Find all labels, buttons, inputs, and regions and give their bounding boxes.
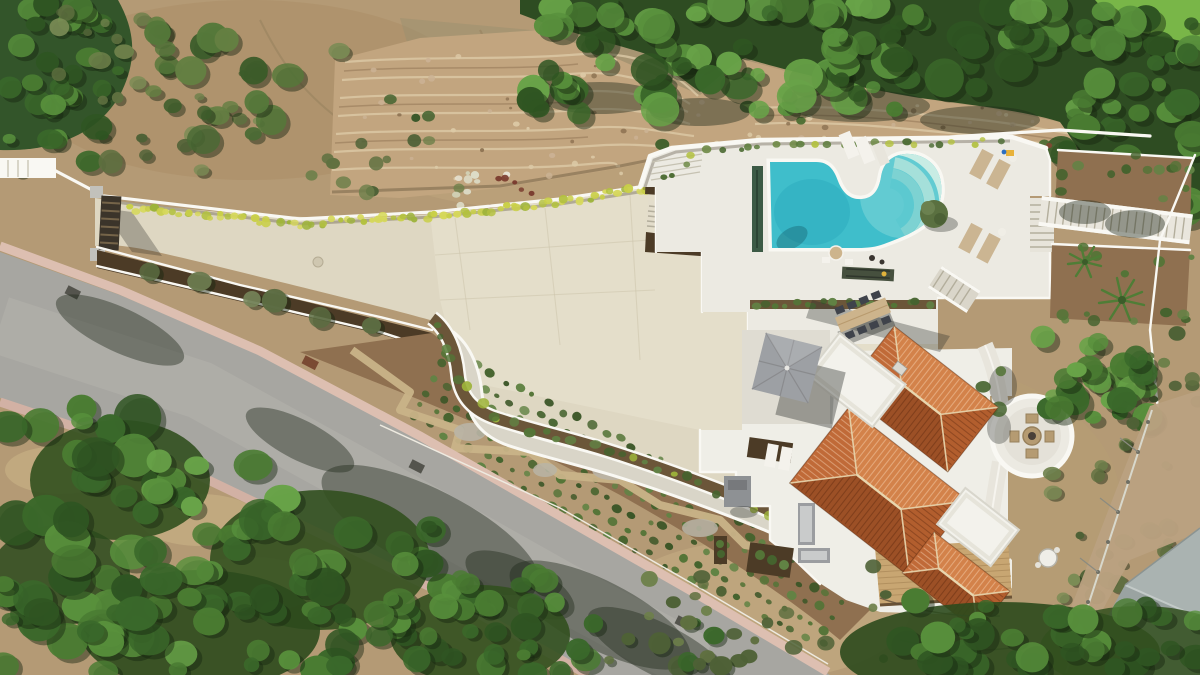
veg-blob [471,171,479,179]
veg-blob [641,571,658,587]
veg-blob [682,471,692,481]
veg-blob [466,171,470,175]
veg-blob [750,636,759,644]
veg-blob [289,548,317,576]
veg-blob [495,176,502,182]
veg-blob [1001,629,1024,647]
veg-blob [1076,19,1093,35]
veg-blob [250,584,279,613]
veg-blob [369,156,384,170]
veg-blob [378,100,385,105]
veg-blob [453,211,461,218]
veg-blob [268,511,301,541]
veg-blob [709,656,732,675]
veg-blob [528,165,533,169]
veg-blob [591,73,597,78]
veg-blob [629,454,637,462]
veg-blob [762,5,778,21]
veg-blob [929,143,935,147]
veg-blob [686,152,695,159]
veg-blob [328,216,335,223]
veg-blob [660,174,667,180]
veg-blob [834,72,849,86]
veg-blob [1088,333,1109,351]
veg-blob [948,139,955,145]
veg-blob [740,649,757,663]
veg-blob [509,417,519,426]
veg-blob [1154,165,1165,175]
veg-blob [187,125,220,154]
veg-blob [1121,164,1131,174]
veg-blob [519,187,524,191]
veg-blob [276,218,285,227]
veg-blob [410,157,414,160]
veg-blob [793,299,802,306]
veg-blob [194,93,204,100]
veg-blob [140,563,183,596]
veg-blob [110,485,137,508]
veg-blob [567,195,573,201]
veg-blob [1057,309,1069,320]
veg-blob [880,590,892,599]
veg-blob [891,303,898,308]
veg-blob [230,212,238,219]
veg-blob [164,98,182,113]
veg-blob [383,156,392,164]
veg-blob [1084,311,1090,316]
veg-blob [972,142,979,148]
veg-blob [426,58,431,63]
veg-blob [328,43,349,59]
veg-blob [546,172,553,179]
veg-blob [193,607,225,635]
veg-blob [181,496,202,516]
veg-blob [901,588,930,613]
veg-blob [886,102,903,117]
veg-blob [129,76,146,89]
veg-blob [1119,72,1150,96]
veg-blob [474,179,480,184]
veg-blob [322,153,334,163]
veg-blob [752,303,762,310]
veg-blob [279,650,301,669]
veg-blob [217,211,223,216]
veg-blob [524,428,536,438]
veg-blob [338,217,343,222]
veg-blob [272,63,304,87]
veg-blob [442,344,452,353]
veg-blob [701,606,712,616]
veg-blob [392,552,419,576]
veg-blob [511,203,520,211]
veg-blob [391,215,397,220]
veg-blob [512,180,517,184]
veg-blob [8,34,35,57]
veg-blob [544,197,553,204]
veg-blob [527,99,549,117]
veg-blob [319,220,327,227]
veg-blob [488,109,493,113]
veg-blob [76,151,102,172]
veg-blob [503,202,511,208]
veg-blob [777,79,817,113]
veg-blob [22,74,43,91]
veg-blob [112,66,124,75]
gravel-patch [533,463,557,477]
veg-blob [215,28,239,52]
manhole-cover [313,257,323,267]
veg-blob [131,208,140,215]
veg-blob [683,162,690,168]
veg-blob [455,54,461,59]
veg-blob [187,272,211,291]
veg-blob [244,657,260,672]
veg-blob [175,212,182,217]
veg-blob [143,478,173,504]
veg-blob [956,34,989,60]
veg-blob [834,28,848,42]
veg-blob [510,577,531,592]
veg-blob [644,612,654,620]
veg-blob [411,114,420,122]
veg-blob [451,128,456,132]
veg-blob [240,57,268,85]
veg-blob [88,52,111,69]
veg-blob [604,447,615,456]
veg-blob [155,41,176,57]
veg-blob [811,141,819,148]
veg-blob [1068,604,1099,634]
veg-blob [559,195,568,204]
veg-blob [604,656,614,664]
veg-blob [397,113,401,116]
veg-blob [1177,309,1189,319]
veg-blob [772,303,779,309]
veg-blob [290,220,298,226]
veg-blob [538,60,559,81]
veg-blob [1044,486,1062,500]
veg-blob [576,33,599,53]
veg-blob [572,161,578,167]
veg-blob [194,164,209,175]
veg-blob [772,141,780,148]
veg-blob [591,156,595,159]
pool-toy-ball [1002,150,1007,155]
veg-blob [693,570,710,583]
veg-blob [489,412,500,421]
veg-blob [382,217,388,222]
veg-blob [51,545,96,578]
veg-blob [243,291,261,307]
veg-blob [653,466,662,473]
veg-blob [506,97,510,100]
veg-blob [261,218,271,227]
veg-blob [115,596,158,631]
veg-blob [1185,372,1200,386]
veg-blob [866,81,880,93]
veg-blob [234,450,273,481]
pool-toy [1006,150,1014,156]
veg-blob [99,150,123,174]
veg-blob [455,573,480,594]
veg-blob [383,592,399,607]
veg-blob [411,217,418,223]
veg-blob [1128,104,1149,121]
veg-blob [363,116,367,119]
veg-blob [384,94,397,104]
veg-blob [362,317,381,334]
veg-blob [195,211,201,216]
veg-blob [523,205,529,210]
veg-blob [419,627,437,645]
veg-blob [452,192,460,198]
stair-tree-shadow [1105,210,1165,238]
veg-blob [462,624,479,639]
veg-blob [71,413,93,430]
veg-blob [551,202,559,208]
gate-pillar-north [90,186,103,198]
veg-blob [334,516,373,549]
veg-blob [423,136,435,145]
veg-blob [570,140,574,144]
veg-blob [911,142,918,149]
veg-blob [441,648,462,666]
gravel-patch [682,519,718,537]
veg-blob [1092,2,1116,21]
veg-blob [462,381,472,391]
veg-blob [1124,345,1148,369]
veg-blob [638,9,675,44]
veg-blob [1184,17,1198,30]
veg-blob [429,594,458,620]
veg-blob [785,640,803,655]
veg-blob [749,101,770,119]
veg-blob [359,184,375,200]
veg-blob [435,166,438,169]
veg-blob [543,428,551,435]
veg-blob [1169,326,1186,341]
veg-blob [1090,26,1125,61]
veg-blob [145,85,161,97]
veg-blob [422,111,435,122]
veg-blob [428,75,435,82]
veg-blob [879,24,901,45]
veg-blob [72,437,120,477]
veg-blob [1147,55,1165,70]
veg-blob [501,175,509,182]
dog [880,260,885,265]
veg-blob [430,211,437,218]
veg-blob [26,17,46,32]
veg-blob [549,153,555,158]
veg-blob [1121,270,1129,277]
veg-blob [600,195,605,200]
veg-blob [498,206,505,211]
veg-blob [529,191,535,196]
veg-blob [644,129,648,133]
veg-blob [1045,396,1074,421]
veg-blob [565,436,577,445]
veg-blob [95,130,108,140]
veg-blob [336,176,351,188]
veg-blob [244,90,269,114]
veg-blob [478,398,490,408]
veg-blob [1068,574,1080,586]
veg-blob [526,127,529,130]
veg-blob [590,192,599,199]
veg-blob [511,613,542,640]
veg-blob [1169,381,1182,391]
veg-blob [823,141,832,148]
veg-blob [1131,152,1141,160]
veg-blob [1067,114,1100,139]
veg-blob [624,184,633,193]
veg-blob [1158,358,1170,368]
veg-blob [965,78,987,97]
veg-blob [1057,593,1070,604]
veg-blob [936,141,944,148]
veg-blob [139,263,160,282]
veg-blob [978,600,994,613]
veg-blob [1072,161,1084,171]
veg-blob [669,173,675,178]
veg-blob [996,366,1006,376]
veg-blob [693,658,706,670]
veg-blob [851,31,877,55]
veg-blob [686,6,707,21]
veg-blob [680,615,698,630]
veg-blob [1004,20,1030,41]
veg-blob [695,65,725,95]
veg-blob [475,590,504,617]
aerial-photo-stage [0,0,1200,675]
veg-blob [1016,642,1049,672]
veg-blob [1067,362,1087,377]
veg-blob [169,208,176,215]
veg-blob [184,456,209,475]
veg-blob [175,56,206,85]
veg-blob [484,644,505,665]
veg-blob [98,96,108,105]
veg-blob [902,4,924,25]
veg-blob [371,68,377,73]
veg-blob [1055,187,1067,196]
veg-blob [712,490,720,498]
dog [869,255,875,261]
veg-blob [49,18,69,36]
veg-blob [517,649,531,660]
veg-blob [619,172,623,176]
veg-blob [925,58,964,97]
veg-blob [910,298,919,306]
veg-blob [926,301,934,309]
veg-blob [747,133,752,138]
veg-blob [761,300,771,307]
veg-blob [407,134,421,147]
veg-blob [136,134,147,143]
veg-blob [865,559,881,573]
veg-blob [980,137,986,142]
veg-blob [584,614,603,633]
veg-blob [552,436,561,442]
veg-blob [689,592,700,600]
veg-blob [83,29,92,36]
veg-blob [308,221,314,227]
veg-blob [445,354,455,362]
veg-blob [1170,161,1181,172]
veg-blob [868,604,877,612]
veg-blob [262,289,287,313]
veg-blob [37,129,63,149]
veg-blob [1160,308,1172,317]
veg-blob [796,141,805,148]
veg-blob [885,140,894,147]
veg-blob [41,94,67,115]
veg-blob [673,638,684,647]
veg-blob [1161,641,1180,656]
veg-blob [434,322,442,328]
veg-blob [1084,68,1116,99]
veg-blob [437,334,443,340]
veg-blob [446,213,452,218]
veg-blob [1107,387,1138,413]
veg-blob [1091,468,1105,482]
veg-blob [112,92,124,103]
veg-blob [484,622,507,642]
veg-blob [100,19,109,28]
veg-blob [671,471,678,476]
veg-blob [306,170,318,180]
veg-blob [1031,326,1056,348]
veg-blob [1112,598,1143,627]
veg-blob [463,189,471,195]
veg-blob [779,607,795,619]
veg-blob [355,138,367,149]
veg-blob [817,636,834,651]
veg-blob [509,107,512,110]
veg-blob [642,460,648,465]
veg-blob [1076,532,1085,540]
veg-blob [621,633,635,646]
veg-blob [666,596,681,608]
veg-blob [309,307,331,328]
veg-blob [162,209,169,215]
veg-blob [782,304,787,309]
veg-blob [694,479,702,486]
side-table [998,228,1006,236]
veg-blob [822,125,829,130]
veg-blob [360,219,367,225]
veg-blob [762,617,774,628]
veg-blob [1107,170,1115,178]
veg-blob [739,147,744,152]
veg-blob [1152,78,1166,92]
veg-blob [513,122,520,127]
veg-blob [455,175,462,181]
veg-blob [1060,643,1084,662]
veg-blob [114,44,134,59]
veg-blob [1188,254,1194,259]
veg-blob [307,607,331,625]
veg-blob [3,134,16,144]
veg-blob [786,122,790,126]
veg-blob [580,72,586,77]
veg-blob [881,47,914,72]
veg-blob [2,613,19,626]
veg-blob [902,138,912,145]
veg-blob [126,204,133,210]
veg-blob [453,183,464,192]
